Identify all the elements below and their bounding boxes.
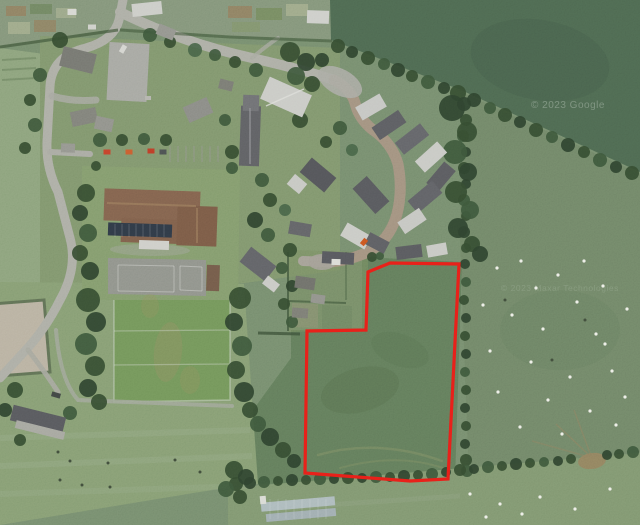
- aerial-photo: © 2023 Google© 2023 Maxar Technologies: [0, 0, 640, 525]
- watermark-text-2: © 2023 Maxar Technologies: [501, 283, 619, 293]
- satellite-image: © 2023 Google© 2023 Maxar Technologies: [0, 0, 640, 525]
- photo-grain-overlay: [0, 0, 640, 525]
- watermark-text-1: © 2023 Google: [531, 100, 605, 111]
